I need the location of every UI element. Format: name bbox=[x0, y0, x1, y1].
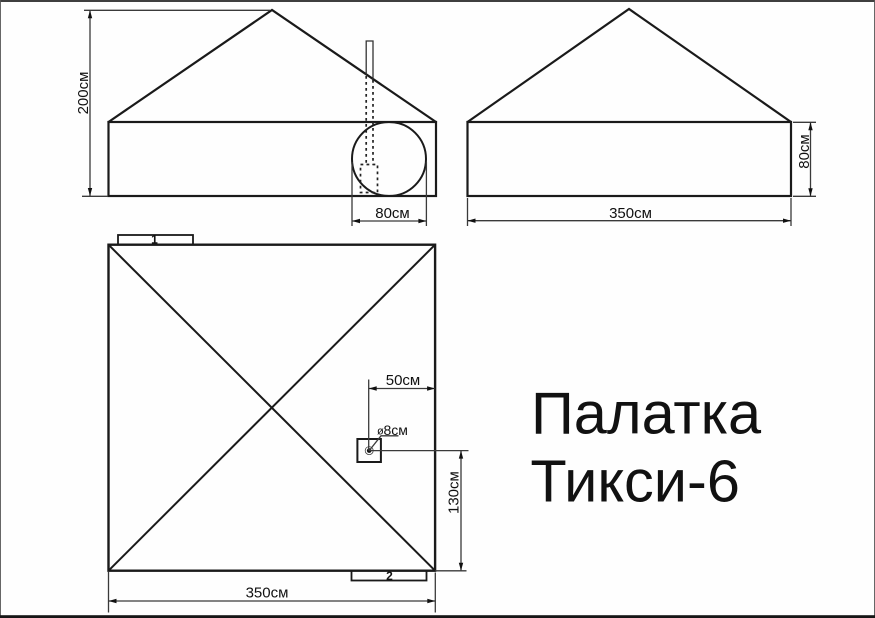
svg-text:50см: 50см bbox=[386, 372, 421, 389]
svg-text:80см: 80см bbox=[375, 205, 410, 222]
svg-text:200см: 200см bbox=[75, 72, 92, 115]
svg-text:Палатка: Палатка bbox=[531, 380, 762, 447]
svg-text:8см: 8см bbox=[384, 422, 408, 438]
svg-text:350см: 350см bbox=[609, 205, 652, 222]
svg-text:130см: 130см bbox=[446, 471, 463, 514]
svg-text:80см: 80см bbox=[796, 134, 813, 169]
svg-text:Тикси-6: Тикси-6 bbox=[530, 448, 740, 515]
svg-text:2: 2 bbox=[386, 569, 393, 583]
svg-text:350см: 350см bbox=[246, 585, 289, 602]
svg-text:1: 1 bbox=[151, 233, 158, 247]
